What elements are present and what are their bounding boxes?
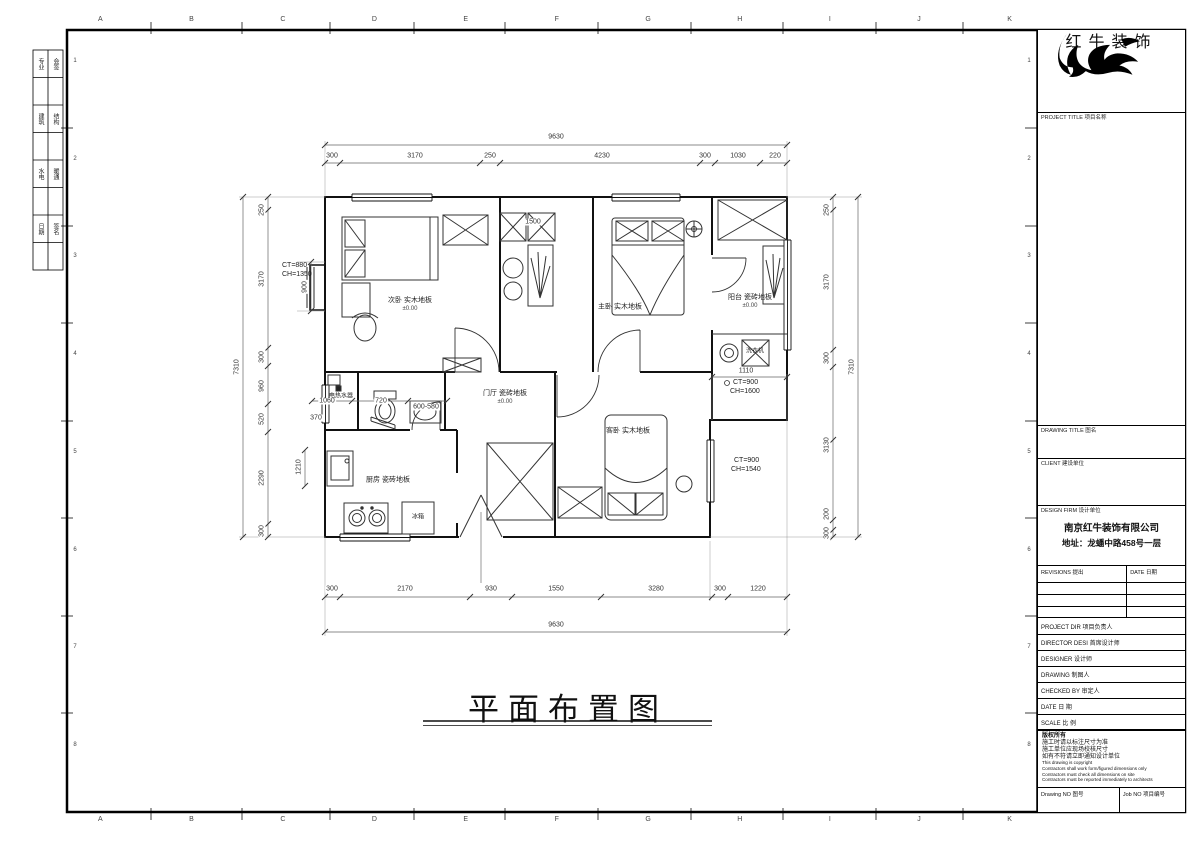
dim-right: 200 — [824, 507, 831, 521]
dim-step: 370 — [309, 415, 323, 422]
dim-bottom: 300 — [325, 586, 339, 593]
label-washer: 洗衣机 — [746, 348, 764, 356]
col-letter: I — [829, 816, 831, 823]
col-letter: F — [555, 816, 559, 823]
col-letter: J — [917, 16, 921, 23]
row-number: 6 — [1024, 547, 1034, 553]
dim-right: 300 — [824, 351, 831, 365]
col-letter: G — [645, 16, 650, 23]
drawing-title-section: DRAWING TITLE 图名 — [1038, 425, 1185, 458]
ruler-left: 12345678 — [70, 58, 80, 748]
title-block: 红牛装饰 PROJECT TITLE 项目名称 DRAWING TITLE 图名… — [1037, 30, 1185, 812]
row-number: 5 — [70, 449, 80, 455]
col-letter: A — [98, 816, 103, 823]
firm-address: 地址：龙蟠中路458号一层 — [1038, 537, 1185, 549]
dim-cabinet: 1500 — [524, 219, 542, 226]
col-letter: H — [737, 16, 742, 23]
row-number: 8 — [1024, 742, 1034, 748]
scale-row: SCALE 比 例 — [1038, 714, 1185, 730]
windows — [307, 194, 791, 541]
dim-top: 4230 — [593, 153, 611, 160]
revisions-date-label: DATE 日期 — [1126, 566, 1185, 582]
client-section: CLIENT 建设单位 — [1038, 458, 1185, 505]
col-letter: C — [280, 816, 285, 823]
row-number: 5 — [1024, 449, 1034, 455]
col-letter: D — [372, 816, 377, 823]
walls — [310, 197, 787, 537]
dim-bottom: 2170 — [396, 586, 414, 593]
row-number: 4 — [1024, 351, 1034, 357]
dim-bottom: 3280 — [647, 586, 665, 593]
firm-name: 南京红牛装饰有限公司 — [1038, 520, 1185, 534]
dim-top: 1030 — [729, 153, 747, 160]
date-row: DATE 日 期 — [1038, 698, 1185, 714]
dim-right: 300 — [824, 526, 831, 540]
dim-top: 300 — [698, 153, 712, 160]
drawing-sheet: ABCDEFGHIJK ABCDEFGHIJK 12345678 1234567… — [0, 0, 1200, 844]
dim-bottom: 300 — [713, 586, 727, 593]
row-number: 3 — [1024, 253, 1034, 259]
balcony-annotation-ch: CH=1600 — [730, 388, 760, 395]
copyright-section: 版权所有 施工时请以标注尺寸为准 施工单位应现场校核尺寸 如有不符请立即通知设计… — [1038, 729, 1185, 787]
dim-right: 250 — [824, 203, 831, 217]
dim-bottom-total: 9630 — [547, 622, 565, 629]
sign-cell: 结构 — [48, 105, 63, 132]
col-letter: K — [1007, 16, 1012, 23]
dim-right-total: 7310 — [849, 358, 856, 376]
ruler-right: 12345678 — [1024, 58, 1034, 748]
room-label-bedroom1: 次卧 实木地板±0.00 — [388, 297, 432, 313]
sheet-title: 平面布置图 — [423, 684, 713, 729]
ruler-top: ABCDEFGHIJK — [98, 16, 1012, 23]
dim-left: 250 — [259, 203, 266, 217]
dim-left: 960 — [259, 379, 266, 393]
director-row: DIRECTOR DESI 首席设计师 — [1038, 634, 1185, 650]
col-letter: E — [463, 816, 468, 823]
door-swings — [412, 258, 746, 430]
dim-basin: 600-580 — [412, 404, 440, 411]
numbers-section: Drawing NO 图号 Job NO 项目编号 — [1038, 787, 1185, 812]
brand-logo-section: 红牛装饰 — [1038, 30, 1185, 112]
col-letter: C — [280, 16, 285, 23]
row-number: 7 — [1024, 644, 1034, 650]
dim-left: 520 — [259, 412, 266, 426]
dim-top: 250 — [483, 153, 497, 160]
revisions-label: REVISIONS 提出 — [1038, 566, 1126, 582]
designer-row: DESIGNER 设计师 — [1038, 650, 1185, 666]
row-number: 2 — [1024, 156, 1034, 162]
label-heater: 电热水器 — [329, 393, 353, 401]
col-letter: J — [917, 816, 921, 823]
row-number: 7 — [70, 644, 80, 650]
brand-logo-icon — [1038, 30, 1156, 86]
dim-top-total: 9630 — [547, 134, 565, 141]
dim-top: 3170 — [406, 153, 424, 160]
room-label-master: 主卧 实木地板 — [598, 304, 642, 313]
dim-top: 300 — [325, 153, 339, 160]
col-letter: H — [737, 816, 742, 823]
dim-left: 3170 — [259, 270, 266, 288]
row-number: 1 — [1024, 58, 1034, 64]
dim-left: 300 — [259, 524, 266, 538]
dimension-lines — [239, 141, 862, 636]
row-number: 6 — [70, 547, 80, 553]
personnel-rows: PROJECT DIR 项目负责人 DIRECTOR DESI 首席设计师 DE… — [1038, 617, 1185, 729]
dimension-ticks — [240, 142, 861, 635]
row-number: 1 — [70, 58, 80, 64]
dim-bottom: 930 — [484, 586, 498, 593]
dim-bay: 900 — [302, 280, 309, 294]
ceiling-lamp-icon — [686, 221, 702, 237]
drawing-row: DRAWING 制图人 — [1038, 666, 1185, 682]
room-label-balcony: 阳台 瓷砖地板±0.00 — [728, 294, 772, 310]
ruler-bottom: ABCDEFGHIJK — [98, 816, 1012, 823]
sign-cell: 会签 — [48, 50, 63, 77]
dim-left: 2290 — [259, 469, 266, 487]
window-annotation-ct: CT=900 — [734, 457, 759, 464]
dim-top: 220 — [768, 153, 782, 160]
drawing-no-label: Drawing NO 图号 — [1038, 788, 1119, 812]
col-letter: D — [372, 16, 377, 23]
dim-right: 3130 — [824, 436, 831, 454]
bay-window-annotation-ch: CH=1350 — [282, 271, 312, 278]
col-letter: A — [98, 16, 103, 23]
col-letter: B — [189, 16, 194, 23]
dim-right: 3170 — [824, 273, 831, 291]
dim-bottom: 1220 — [749, 586, 767, 593]
row-number: 4 — [70, 351, 80, 357]
col-letter: B — [189, 816, 194, 823]
row-number: 3 — [70, 253, 80, 259]
col-letter: F — [555, 16, 559, 23]
row-number: 2 — [70, 156, 80, 162]
revisions-section: REVISIONS 提出 DATE 日期 — [1038, 565, 1185, 617]
room-label-bedroom2: 客卧 实木地板 — [606, 428, 650, 437]
bay-window-annotation-ct: CT=880 — [282, 262, 307, 269]
sign-cell: 日期 — [33, 215, 48, 242]
row-number: 8 — [70, 742, 80, 748]
design-firm-section: DESIGN FIRM 设计单位 南京红牛装饰有限公司 地址：龙蟠中路458号一… — [1038, 505, 1185, 565]
dim-left: 300 — [259, 350, 266, 364]
col-letter: E — [463, 16, 468, 23]
sign-cell: 水电 — [33, 160, 48, 187]
col-letter: I — [829, 16, 831, 23]
dim-sink: 1210 — [296, 458, 303, 476]
project-dir-row: PROJECT DIR 项目负责人 — [1038, 618, 1185, 634]
dim-bottom: 1550 — [547, 586, 565, 593]
balcony-annotation-ct: CT=900 — [733, 379, 758, 386]
sign-cell: 签名 — [48, 215, 63, 242]
room-label-kitchen: 厨房 瓷砖地板 — [366, 477, 410, 486]
col-letter: G — [645, 816, 650, 823]
annotation-marker — [725, 381, 730, 386]
label-fridge: 冰箱 — [412, 514, 424, 522]
sign-cell: 建筑 — [33, 105, 48, 132]
col-letter: K — [1007, 816, 1012, 823]
checked-by-row: CHECKED BY 审定人 — [1038, 682, 1185, 698]
sign-cell: 专业 — [33, 50, 48, 77]
dim-toilet: 720 — [374, 398, 388, 405]
sign-cell: 暖通 — [48, 160, 63, 187]
project-title-section: PROJECT TITLE 项目名称 — [1038, 112, 1185, 425]
room-label-hall: 门厅 瓷砖地板±0.00 — [483, 390, 527, 406]
job-no-label: Job NO 项目编号 — [1119, 788, 1185, 812]
dim-left-total: 7310 — [234, 358, 241, 376]
window-annotation-ch: CH=1540 — [731, 466, 761, 473]
dim-balcony: 1110 — [738, 368, 755, 375]
